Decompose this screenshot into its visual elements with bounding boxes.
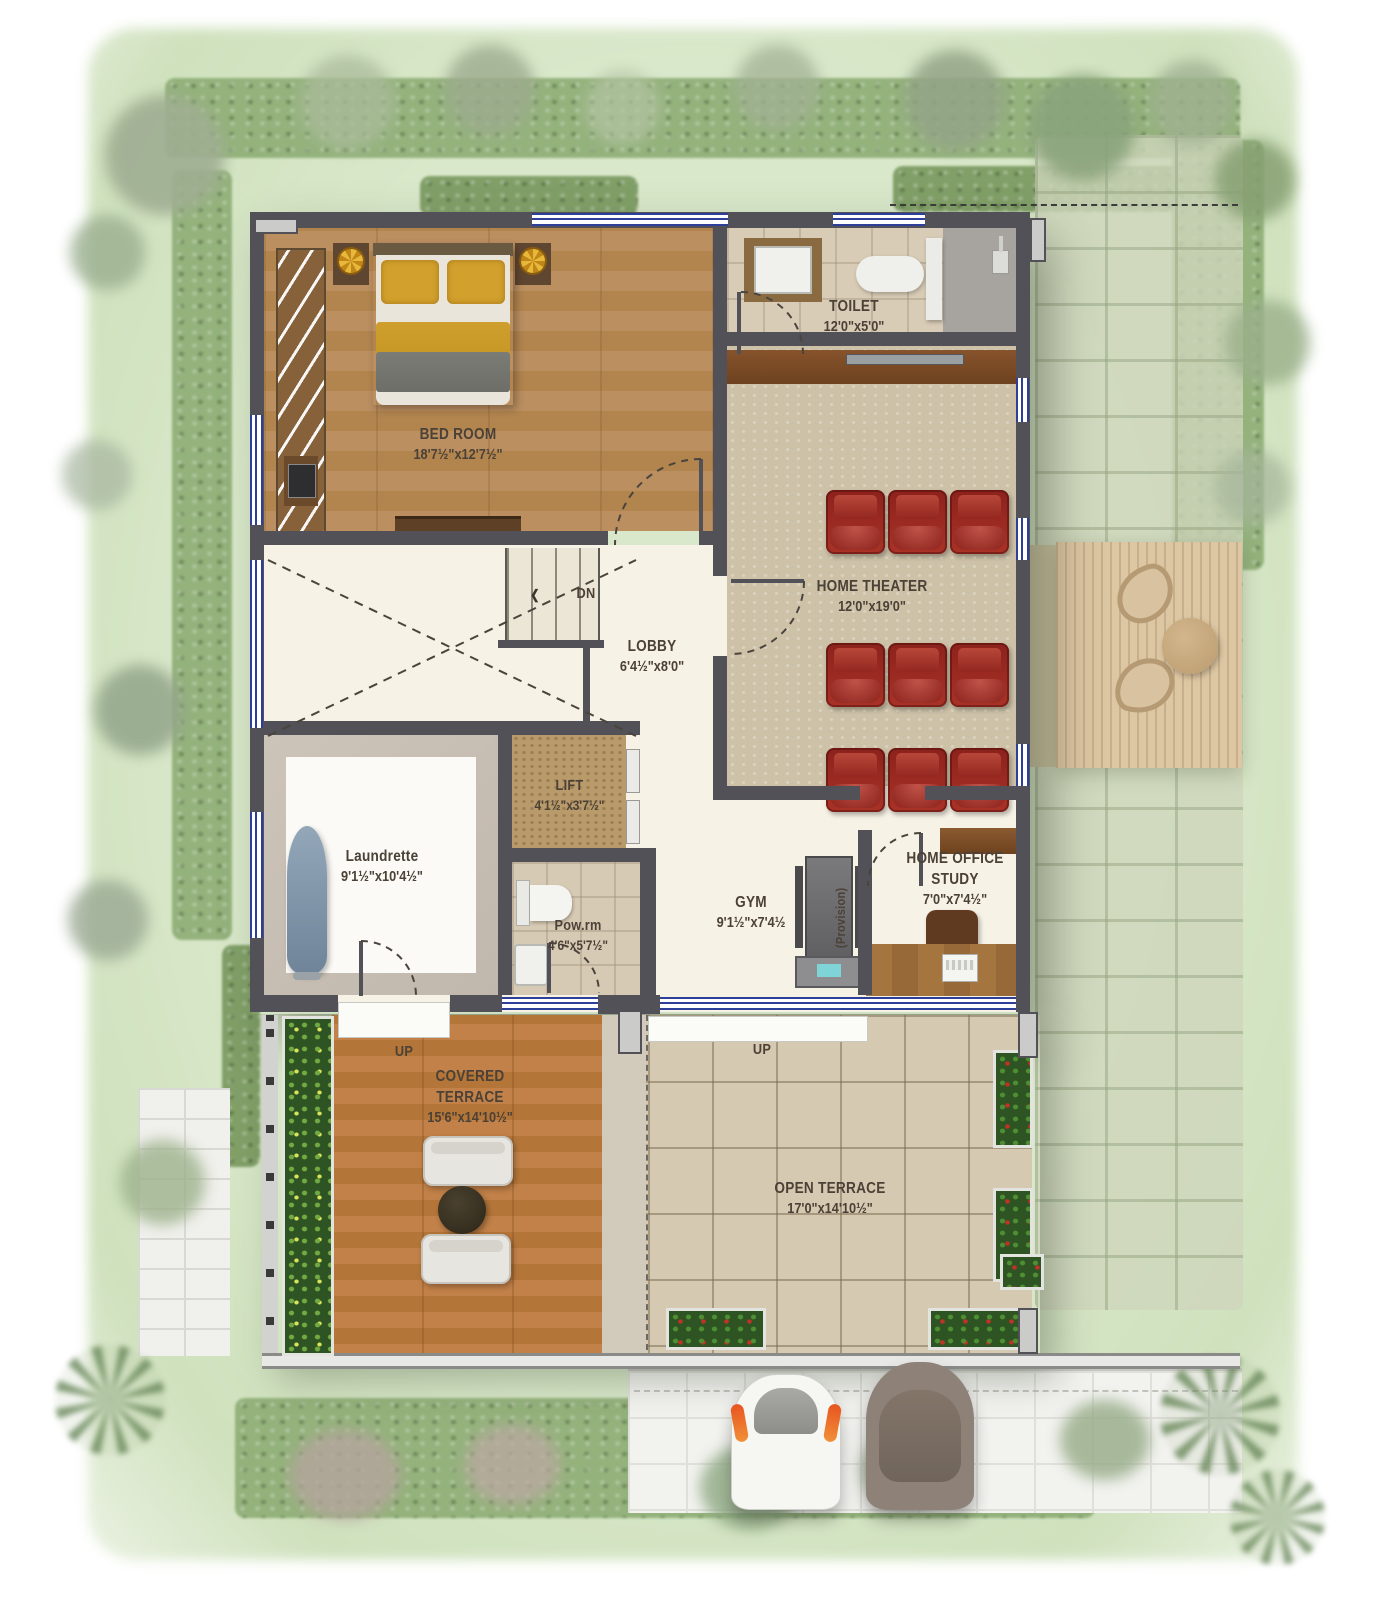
arrow-glyph: ❮ [522, 586, 548, 603]
room-dims: 12'0"x19'0" [804, 597, 940, 617]
label-covered-terrace: COVERED TERRACE 15'6"x14'10½" [406, 1066, 534, 1128]
door-arc [741, 292, 803, 354]
up-label-covered: UP [379, 1042, 430, 1062]
room-dims: 12'0"x5'0" [801, 317, 906, 337]
room-dims: 9'1½"x10'4½" [317, 867, 446, 887]
label-toilet: TOILET 12'0"x5'0" [801, 296, 906, 337]
room-name: TOILET [801, 296, 906, 317]
up-text: UP [737, 1040, 788, 1060]
label-bedroom: BED ROOM 18'7½"x12'7½" [390, 424, 526, 465]
room-name: GYM [687, 892, 815, 913]
room-dims: 4'1½"x3'7½" [521, 796, 619, 814]
room-name: COVERED [406, 1066, 534, 1087]
label-lift: LIFT 4'1½"x3'7½" [521, 776, 619, 814]
room-name: BED ROOM [390, 424, 526, 445]
room-dims: 9'1½"x7'4½ [687, 913, 815, 933]
room-name: LIFT [521, 776, 619, 796]
label-home-office: HOME OFFICE STUDY 7'0"x7'4½" [891, 848, 1019, 910]
label-home-theater: HOME THEATER 12'0"x19'0" [804, 576, 940, 617]
room-dims: 15'6"x14'10½" [406, 1108, 534, 1128]
room-name: HOME OFFICE [891, 848, 1019, 869]
provision-text: (Provision) [832, 874, 849, 962]
room-dims: 17'0"x14'10½" [755, 1199, 905, 1219]
up-text: UP [379, 1042, 430, 1062]
label-laundrette: Laundrette 9'1½"x10'4½" [317, 846, 446, 887]
room-dims: 18'7½"x12'7½" [390, 445, 526, 465]
label-lobby: LOBBY 6'4½"x8'0" [601, 636, 703, 677]
room-name: STUDY [891, 869, 1019, 890]
door-arc [731, 581, 804, 654]
door-arc [361, 941, 416, 996]
floor-plan: BED ROOM 18'7½"x12'7½" TOILET 12'0"x5'0"… [0, 0, 1374, 1618]
up-label-open: UP [737, 1040, 788, 1060]
label-gym: GYM 9'1½"x7'4½ [687, 892, 815, 933]
provision-label: (Provision) [832, 874, 849, 962]
room-name: TERRACE [406, 1087, 534, 1108]
door-swing-layer [0, 0, 1374, 1618]
dn-text: DN [561, 584, 612, 604]
room-name: HOME THEATER [804, 576, 940, 597]
room-name: OPEN TERRACE [755, 1178, 905, 1199]
stairs-arrow-icon: ❮ [522, 586, 548, 603]
room-dims: 7'0"x7'4½" [891, 890, 1019, 910]
stairs-down-label: DN [561, 584, 612, 604]
label-open-terrace: OPEN TERRACE 17'0"x14'10½" [755, 1178, 905, 1219]
room-dims: 6'4½"x8'0" [601, 657, 703, 677]
room-name: Laundrette [317, 846, 446, 867]
room-name: LOBBY [601, 636, 703, 657]
room-name: Pow.rm [520, 916, 636, 936]
door-arc [615, 459, 701, 545]
room-dims: 4'6"x5'7½" [520, 936, 636, 954]
label-powder-room: Pow.rm 4'6"x5'7½" [520, 916, 636, 954]
